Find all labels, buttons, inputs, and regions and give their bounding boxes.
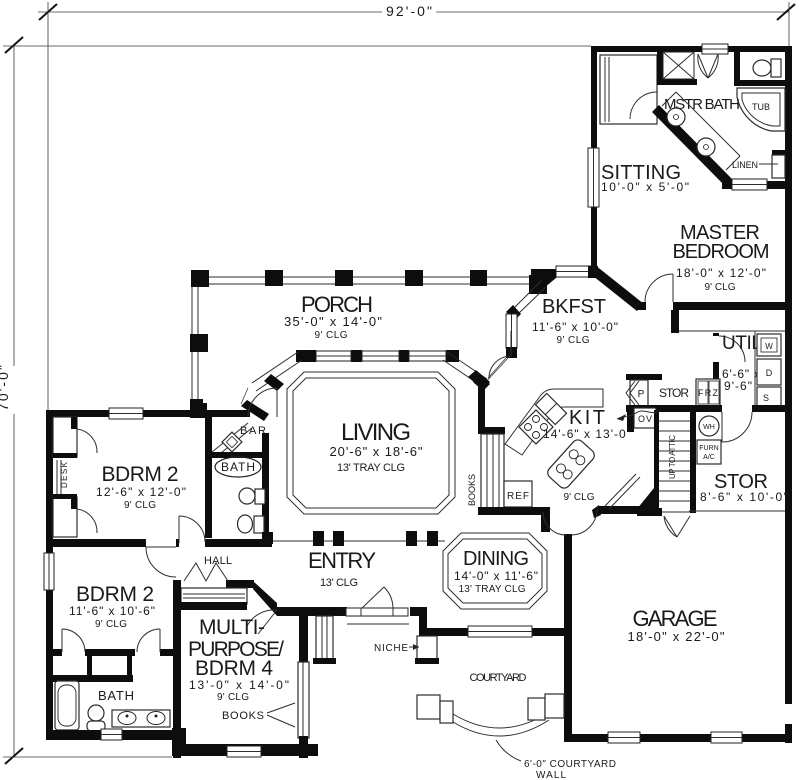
svg-text:18'-0" x 12'-0": 18'-0" x 12'-0" <box>676 266 766 280</box>
svg-text:14'-0" x 11'-6": 14'-0" x 11'-6" <box>454 569 538 583</box>
svg-text:DINING: DINING <box>463 548 529 570</box>
svg-text:9' CLG: 9' CLG <box>705 282 736 293</box>
svg-text:BATH: BATH <box>221 460 255 474</box>
svg-text:BATH: BATH <box>98 688 134 703</box>
svg-text:DESK: DESK <box>60 461 69 488</box>
svg-text:6'-0" COURTYARD: 6'-0" COURTYARD <box>524 759 616 770</box>
svg-text:P: P <box>638 389 645 400</box>
svg-text:LIVING: LIVING <box>341 419 411 446</box>
svg-text:BDRM 2: BDRM 2 <box>76 583 154 606</box>
svg-text:WH: WH <box>703 424 715 431</box>
svg-text:UP TO ATTIC: UP TO ATTIC <box>668 435 677 479</box>
svg-text:A/C: A/C <box>703 454 715 461</box>
svg-text:BOOKS: BOOKS <box>467 474 477 506</box>
svg-text:LINEN: LINEN <box>732 160 758 170</box>
svg-text:9' CLG: 9' CLG <box>564 492 595 503</box>
svg-text:BDRM 4: BDRM 4 <box>195 657 273 680</box>
svg-text:20'-6" x 18'-6": 20'-6" x 18'-6" <box>330 444 423 459</box>
svg-text:COURTYARD: COURTYARD <box>470 672 527 684</box>
svg-text:BEDROOM: BEDROOM <box>673 241 770 263</box>
svg-text:14'-6" x 13'-0": 14'-6" x 13'-0" <box>543 427 631 441</box>
svg-text:13' TRAY CLG: 13' TRAY CLG <box>459 584 526 595</box>
svg-text:REF: REF <box>507 491 529 502</box>
svg-text:FRZ: FRZ <box>698 388 719 398</box>
svg-text:13' TRAY CLG: 13' TRAY CLG <box>337 462 405 474</box>
svg-text:11'-6" x 10'-6": 11'-6" x 10'-6" <box>69 604 155 618</box>
svg-text:MULTI-: MULTI- <box>199 616 265 639</box>
svg-text:TUB: TUB <box>752 102 770 112</box>
svg-text:BDRM 2: BDRM 2 <box>102 463 179 486</box>
svg-text:KIT: KIT <box>569 407 605 429</box>
svg-text:NICHE: NICHE <box>374 643 408 654</box>
svg-text:W: W <box>765 342 773 351</box>
svg-text:STOR: STOR <box>659 386 689 400</box>
svg-text:9'-6": 9'-6" <box>724 379 752 393</box>
svg-text:12'-6" x 12'-0": 12'-6" x 12'-0" <box>96 485 186 499</box>
svg-text:UTIL: UTIL <box>722 333 762 354</box>
svg-text:9' CLG: 9' CLG <box>217 692 249 703</box>
svg-text:13' CLG: 13' CLG <box>320 577 358 589</box>
svg-text:9' CLG: 9' CLG <box>315 330 348 341</box>
svg-text:WALL: WALL <box>536 770 566 780</box>
svg-text:11'-6" x 10'-0": 11'-6" x 10'-0" <box>532 320 618 334</box>
svg-text:BKFST: BKFST <box>542 296 606 318</box>
svg-text:9' CLG: 9' CLG <box>124 500 156 511</box>
svg-text:BOOKS: BOOKS <box>222 710 264 722</box>
svg-text:D: D <box>766 368 773 378</box>
svg-text:FURN: FURN <box>699 445 718 452</box>
svg-text:9' CLG: 9' CLG <box>557 335 590 346</box>
svg-text:S: S <box>763 393 769 403</box>
svg-text:GARAGE: GARAGE <box>633 606 718 631</box>
svg-text:ENTRY: ENTRY <box>308 548 376 573</box>
svg-text:8'-6" x 10'-0": 8'-6" x 10'-0" <box>700 490 788 504</box>
svg-text:9' CLG: 9' CLG <box>95 619 127 630</box>
svg-text:13'-0" x 14'-0": 13'-0" x 14'-0" <box>189 678 289 692</box>
svg-text:OV: OV <box>638 414 652 424</box>
